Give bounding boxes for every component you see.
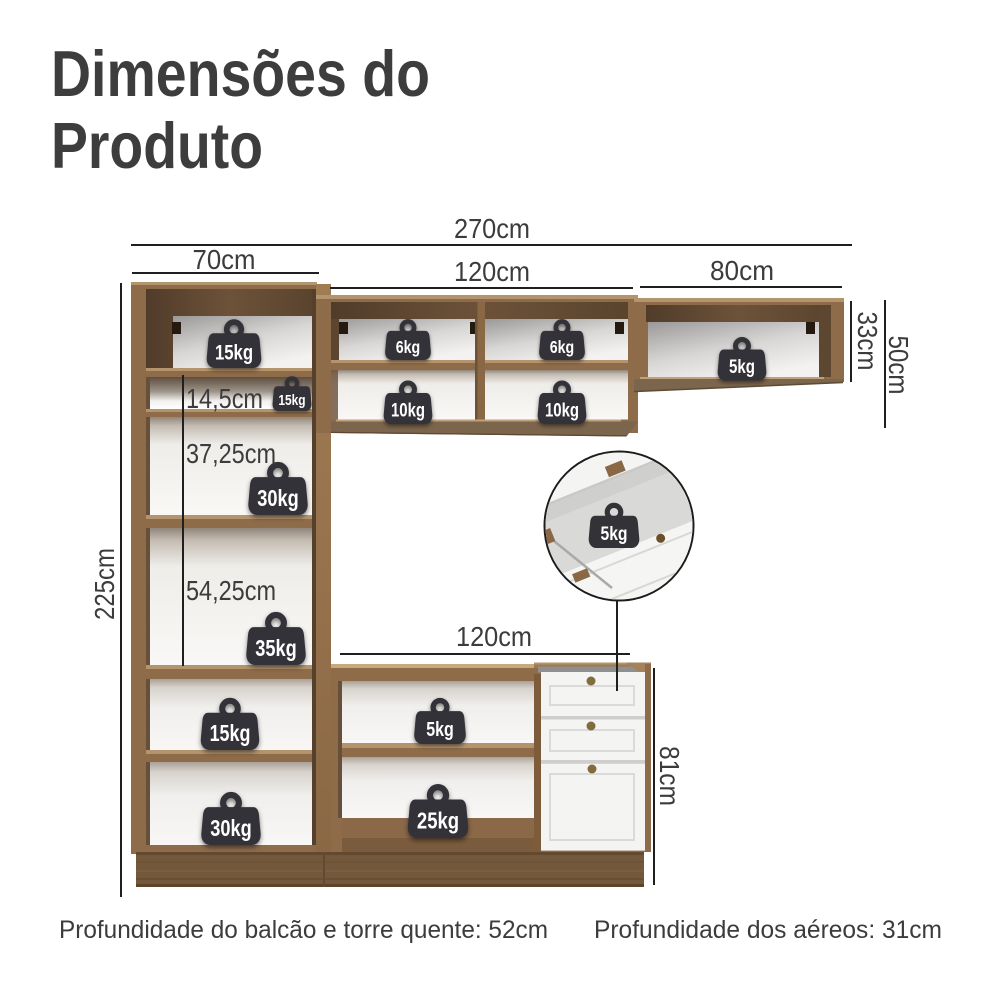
svg-text:37,25cm: 37,25cm: [186, 438, 276, 469]
svg-text:30kg: 30kg: [210, 815, 251, 841]
svg-text:Produto: Produto: [51, 109, 263, 182]
svg-text:14,5cm: 14,5cm: [186, 383, 263, 414]
svg-text:10kg: 10kg: [391, 401, 425, 422]
svg-text:5kg: 5kg: [729, 357, 755, 378]
svg-text:270cm: 270cm: [454, 213, 530, 244]
svg-text:5kg: 5kg: [600, 523, 627, 545]
svg-text:25kg: 25kg: [417, 808, 459, 834]
svg-text:120cm: 120cm: [456, 621, 532, 652]
svg-text:81cm: 81cm: [654, 746, 685, 806]
svg-text:35kg: 35kg: [255, 635, 296, 661]
svg-text:10kg: 10kg: [545, 401, 579, 422]
svg-text:30kg: 30kg: [257, 485, 298, 511]
svg-text:Profundidade dos aéreos: 31cm: Profundidade dos aéreos: 31cm: [594, 916, 942, 944]
svg-text:33cm: 33cm: [852, 312, 883, 371]
svg-text:15kg: 15kg: [278, 392, 305, 409]
svg-text:Dimensões do: Dimensões do: [51, 37, 430, 110]
svg-text:6kg: 6kg: [550, 337, 574, 357]
svg-text:50cm: 50cm: [883, 336, 914, 395]
svg-text:54,25cm: 54,25cm: [186, 575, 276, 606]
svg-text:225cm: 225cm: [89, 548, 120, 620]
svg-text:5kg: 5kg: [426, 719, 454, 741]
svg-text:70cm: 70cm: [193, 244, 256, 275]
svg-text:80cm: 80cm: [710, 255, 774, 286]
svg-text:6kg: 6kg: [396, 337, 420, 357]
svg-text:15kg: 15kg: [210, 720, 251, 746]
svg-text:120cm: 120cm: [454, 256, 530, 287]
svg-text:Profundidade do balcão e torre: Profundidade do balcão e torre quente: 5…: [59, 916, 548, 944]
svg-text:15kg: 15kg: [215, 341, 253, 365]
